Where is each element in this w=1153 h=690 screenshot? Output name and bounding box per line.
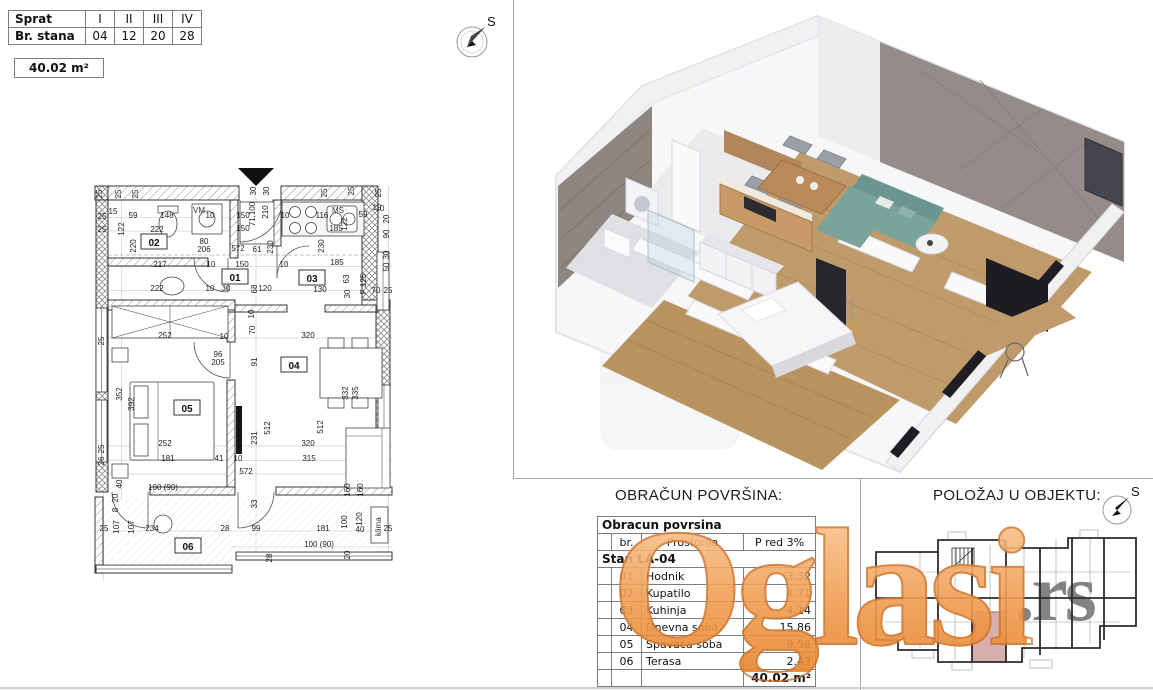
- svg-text:30: 30: [262, 186, 271, 195]
- svg-text:100 (90): 100 (90): [304, 540, 334, 549]
- svg-text:25: 25: [374, 188, 383, 197]
- svg-text:107: 107: [127, 520, 136, 534]
- svg-text:25: 25: [384, 286, 393, 295]
- svg-text:MS: MS: [332, 206, 344, 215]
- area-table-cell: P red 3%: [744, 534, 816, 551]
- svg-text:02: 02: [148, 238, 160, 249]
- svg-text:25: 25: [95, 189, 104, 198]
- svg-text:320: 320: [301, 439, 315, 448]
- area-table-cell: Dnevna soba: [642, 619, 744, 636]
- svg-text:217: 217: [153, 260, 167, 269]
- svg-text:20: 20: [382, 214, 391, 223]
- svg-text:F 125: F 125: [359, 273, 368, 294]
- svg-text:392: 392: [127, 397, 136, 411]
- svg-text:10: 10: [280, 260, 289, 269]
- floor-table-value: I: [86, 11, 115, 28]
- svg-text:205: 205: [211, 358, 225, 367]
- svg-text:03: 03: [306, 274, 318, 285]
- entrance-arrow: [238, 168, 274, 186]
- svg-text:06: 06: [182, 542, 194, 553]
- render-3d: [0, 0, 1153, 478]
- svg-text:20: 20: [111, 493, 120, 502]
- svg-text:15: 15: [109, 207, 118, 216]
- svg-text:04: 04: [288, 361, 300, 372]
- area-table-cell: 9.56: [744, 636, 816, 653]
- svg-text:05: 05: [181, 404, 193, 415]
- area-table-cell: 15.86: [744, 619, 816, 636]
- svg-text:25: 25: [97, 336, 106, 345]
- area-table-cell: 4.14: [744, 602, 816, 619]
- area-table-cell: Kuhinja: [642, 602, 744, 619]
- area-calculation-table: Obracun povrsinabr.ProstorijaP red 3%Sta…: [597, 516, 816, 687]
- svg-text:70: 70: [248, 325, 257, 334]
- area-table-cell: [612, 670, 642, 687]
- bottom-border: [0, 687, 1153, 689]
- svg-text:26: 26: [97, 456, 106, 465]
- svg-text:150: 150: [235, 260, 249, 269]
- svg-text:28: 28: [221, 524, 230, 533]
- svg-text:150: 150: [236, 211, 250, 220]
- svg-text:30: 30: [343, 289, 352, 298]
- area-table-cell: 06: [612, 653, 642, 670]
- area-table-cell: [598, 653, 612, 670]
- svg-text:150: 150: [236, 224, 250, 233]
- area-table-cell: 2.43: [744, 653, 816, 670]
- svg-text:20: 20: [343, 550, 352, 559]
- floor-plan-svg: S: [0, 0, 513, 690]
- svg-text:10: 10: [281, 211, 290, 220]
- svg-text:10: 10: [376, 204, 385, 213]
- svg-text:10: 10: [206, 211, 215, 220]
- svg-text:148: 148: [160, 211, 174, 220]
- svg-text:10: 10: [247, 309, 256, 318]
- svg-text:160: 160: [343, 483, 352, 497]
- svg-text:80: 80: [200, 237, 209, 246]
- room-number-labels: 010203040506: [141, 234, 325, 553]
- floor-table-value: 04: [86, 28, 115, 45]
- floor-table-value: 20: [144, 28, 173, 45]
- svg-text:25: 25: [384, 524, 393, 533]
- svg-text:572: 572: [239, 467, 253, 476]
- svg-text:61: 61: [253, 245, 262, 254]
- highlighted-unit: [972, 612, 1006, 662]
- svg-text:120: 120: [355, 512, 364, 526]
- svg-text:96: 96: [214, 350, 223, 359]
- area-table-cell: 05: [612, 636, 642, 653]
- svg-text:S: S: [1131, 484, 1140, 499]
- svg-text:28: 28: [265, 553, 274, 562]
- svg-text:10: 10: [207, 260, 216, 269]
- area-table-cell: [598, 534, 612, 551]
- svg-text:30: 30: [222, 284, 231, 293]
- floor-table-label: Sprat: [9, 11, 86, 28]
- svg-text:25: 25: [131, 189, 140, 198]
- svg-text:91: 91: [250, 357, 259, 366]
- svg-text:252: 252: [158, 331, 172, 340]
- svg-text:120: 120: [258, 284, 272, 293]
- svg-text:25: 25: [97, 444, 106, 453]
- floor-table-value: IV: [173, 11, 202, 28]
- svg-text:122: 122: [117, 222, 126, 236]
- svg-text:10: 10: [206, 284, 215, 293]
- compass-position-icon: S: [1103, 484, 1140, 524]
- building-position-plan: S: [860, 478, 1153, 690]
- room-label-02: 02: [141, 234, 167, 249]
- svg-text:25: 25: [320, 188, 329, 197]
- svg-text:68: 68: [250, 284, 259, 293]
- svg-text:S: S: [487, 14, 496, 29]
- listing-image: SpratIIIIIIIVBr. stana04122028 40.02 m² …: [0, 0, 1153, 690]
- dimension-labels: 251525255914810150303071,100210101165910…: [95, 186, 393, 562]
- svg-text:206: 206: [197, 245, 211, 254]
- apartment-area-badge: 40.02 m²: [14, 58, 104, 78]
- svg-text:222: 222: [150, 225, 164, 234]
- svg-text:332: 332: [341, 386, 350, 400]
- room-label-01: 01: [222, 269, 248, 284]
- svg-text:116: 116: [316, 211, 329, 220]
- area-table-cell: Kupatilo: [642, 585, 744, 602]
- svg-text:33: 33: [250, 499, 259, 508]
- room-label-05: 05: [174, 400, 200, 415]
- area-table-cell: [598, 619, 612, 636]
- svg-text:25: 25: [98, 212, 107, 221]
- area-table-cell: 04: [612, 619, 642, 636]
- room-label-03: 03: [299, 270, 325, 285]
- svg-text:335: 335: [351, 386, 360, 400]
- svg-text:99: 99: [252, 524, 261, 533]
- svg-text:30: 30: [382, 250, 391, 259]
- svg-text:100 (90): 100 (90): [148, 483, 178, 492]
- area-table-cell: Hodnik: [642, 568, 744, 585]
- area-table-cell: Obracun povrsina: [598, 517, 816, 534]
- svg-text:25: 25: [347, 186, 356, 195]
- area-table-cell: 03: [612, 602, 642, 619]
- tv-symbol: [236, 406, 242, 454]
- panel-divider-vertical: [513, 0, 514, 479]
- svg-text:25: 25: [114, 189, 123, 198]
- floor-info-table: SpratIIIIIIIVBr. stana04122028: [8, 10, 202, 45]
- svg-text:50: 50: [382, 262, 391, 271]
- svg-text:70: 70: [372, 286, 381, 295]
- svg-text:122: 122: [340, 217, 349, 231]
- svg-text:160: 160: [356, 483, 365, 497]
- svg-text:10: 10: [234, 454, 243, 463]
- watermark-suffix: .rs: [1014, 552, 1094, 634]
- svg-text:230: 230: [266, 240, 275, 254]
- svg-text:230: 230: [317, 239, 326, 253]
- area-table-cell: 01: [612, 568, 642, 585]
- area-table-cell: Prostorija: [642, 534, 744, 551]
- area-table-cell: Stan LA-04: [598, 551, 816, 568]
- svg-text:210: 210: [261, 205, 270, 219]
- area-table-cell: [598, 670, 612, 687]
- svg-text:185: 185: [329, 224, 343, 233]
- bottom-panel-divider: [860, 478, 861, 690]
- svg-text:222: 222: [150, 284, 164, 293]
- area-table-cell: [598, 568, 612, 585]
- svg-text:25: 25: [100, 524, 109, 533]
- svg-text:40: 40: [115, 479, 124, 488]
- floor-table-value: 12: [115, 28, 144, 45]
- polozaj-title: POLOŽAJ U OBJEKTU:: [933, 487, 1101, 504]
- area-table-cell: 4.71: [744, 585, 816, 602]
- svg-text:181: 181: [161, 454, 175, 463]
- area-table-cell: 3.32: [744, 568, 816, 585]
- svg-text:512: 512: [263, 421, 272, 435]
- area-table-cell: Spavaca soba: [642, 636, 744, 653]
- svg-text:185: 185: [330, 258, 344, 267]
- area-table-cell: 02: [612, 585, 642, 602]
- svg-text:320: 320: [301, 331, 315, 340]
- svg-text:100: 100: [340, 515, 349, 529]
- svg-text:59: 59: [359, 210, 368, 219]
- svg-text:63: 63: [342, 274, 351, 283]
- svg-text:220: 220: [129, 239, 138, 253]
- svg-text:8: 8: [111, 507, 120, 512]
- floor-table-value: III: [144, 11, 173, 28]
- svg-text:90: 90: [382, 229, 391, 238]
- svg-text:107: 107: [112, 520, 121, 534]
- area-table-cell: [642, 670, 744, 687]
- room-label-04: 04: [281, 357, 307, 372]
- floor-table-label: Br. stana: [9, 28, 86, 45]
- compass-north-icon: S: [457, 14, 496, 57]
- area-table-cell: br.: [612, 534, 642, 551]
- svg-text:VM: VM: [193, 206, 205, 215]
- floor-table-value: II: [115, 11, 144, 28]
- area-table-cell: [598, 602, 612, 619]
- svg-text:252: 252: [158, 439, 172, 448]
- svg-text:59: 59: [129, 211, 138, 220]
- svg-text:10: 10: [220, 332, 229, 341]
- area-table-cell: Terasa: [642, 653, 744, 670]
- svg-text:30: 30: [249, 186, 258, 195]
- area-table-cell: [598, 585, 612, 602]
- svg-text:181: 181: [316, 524, 330, 533]
- svg-text:71,100: 71,100: [248, 201, 257, 226]
- svg-text:352: 352: [115, 387, 124, 401]
- room-label-06: 06: [175, 538, 201, 553]
- floor-table-value: 28: [173, 28, 202, 45]
- obracun-title: OBRAČUN POVRŠINA:: [615, 487, 783, 504]
- svg-text:19: 19: [373, 203, 382, 212]
- svg-text:130: 130: [313, 285, 327, 294]
- svg-text:01: 01: [229, 273, 241, 284]
- svg-text:40: 40: [356, 525, 365, 534]
- svg-text:41: 41: [215, 454, 224, 463]
- svg-text:231: 231: [250, 431, 259, 445]
- area-table-cell: [598, 636, 612, 653]
- svg-text:512: 512: [316, 420, 325, 434]
- svg-text:572: 572: [231, 244, 245, 253]
- svg-text:25: 25: [98, 225, 107, 234]
- svg-text:315: 315: [302, 454, 316, 463]
- svg-text:234: 234: [145, 524, 159, 533]
- panel-divider-horizontal: [513, 478, 1153, 479]
- area-table-cell: 40.02 m²: [744, 670, 816, 687]
- svg-text:klima: klima: [374, 517, 383, 536]
